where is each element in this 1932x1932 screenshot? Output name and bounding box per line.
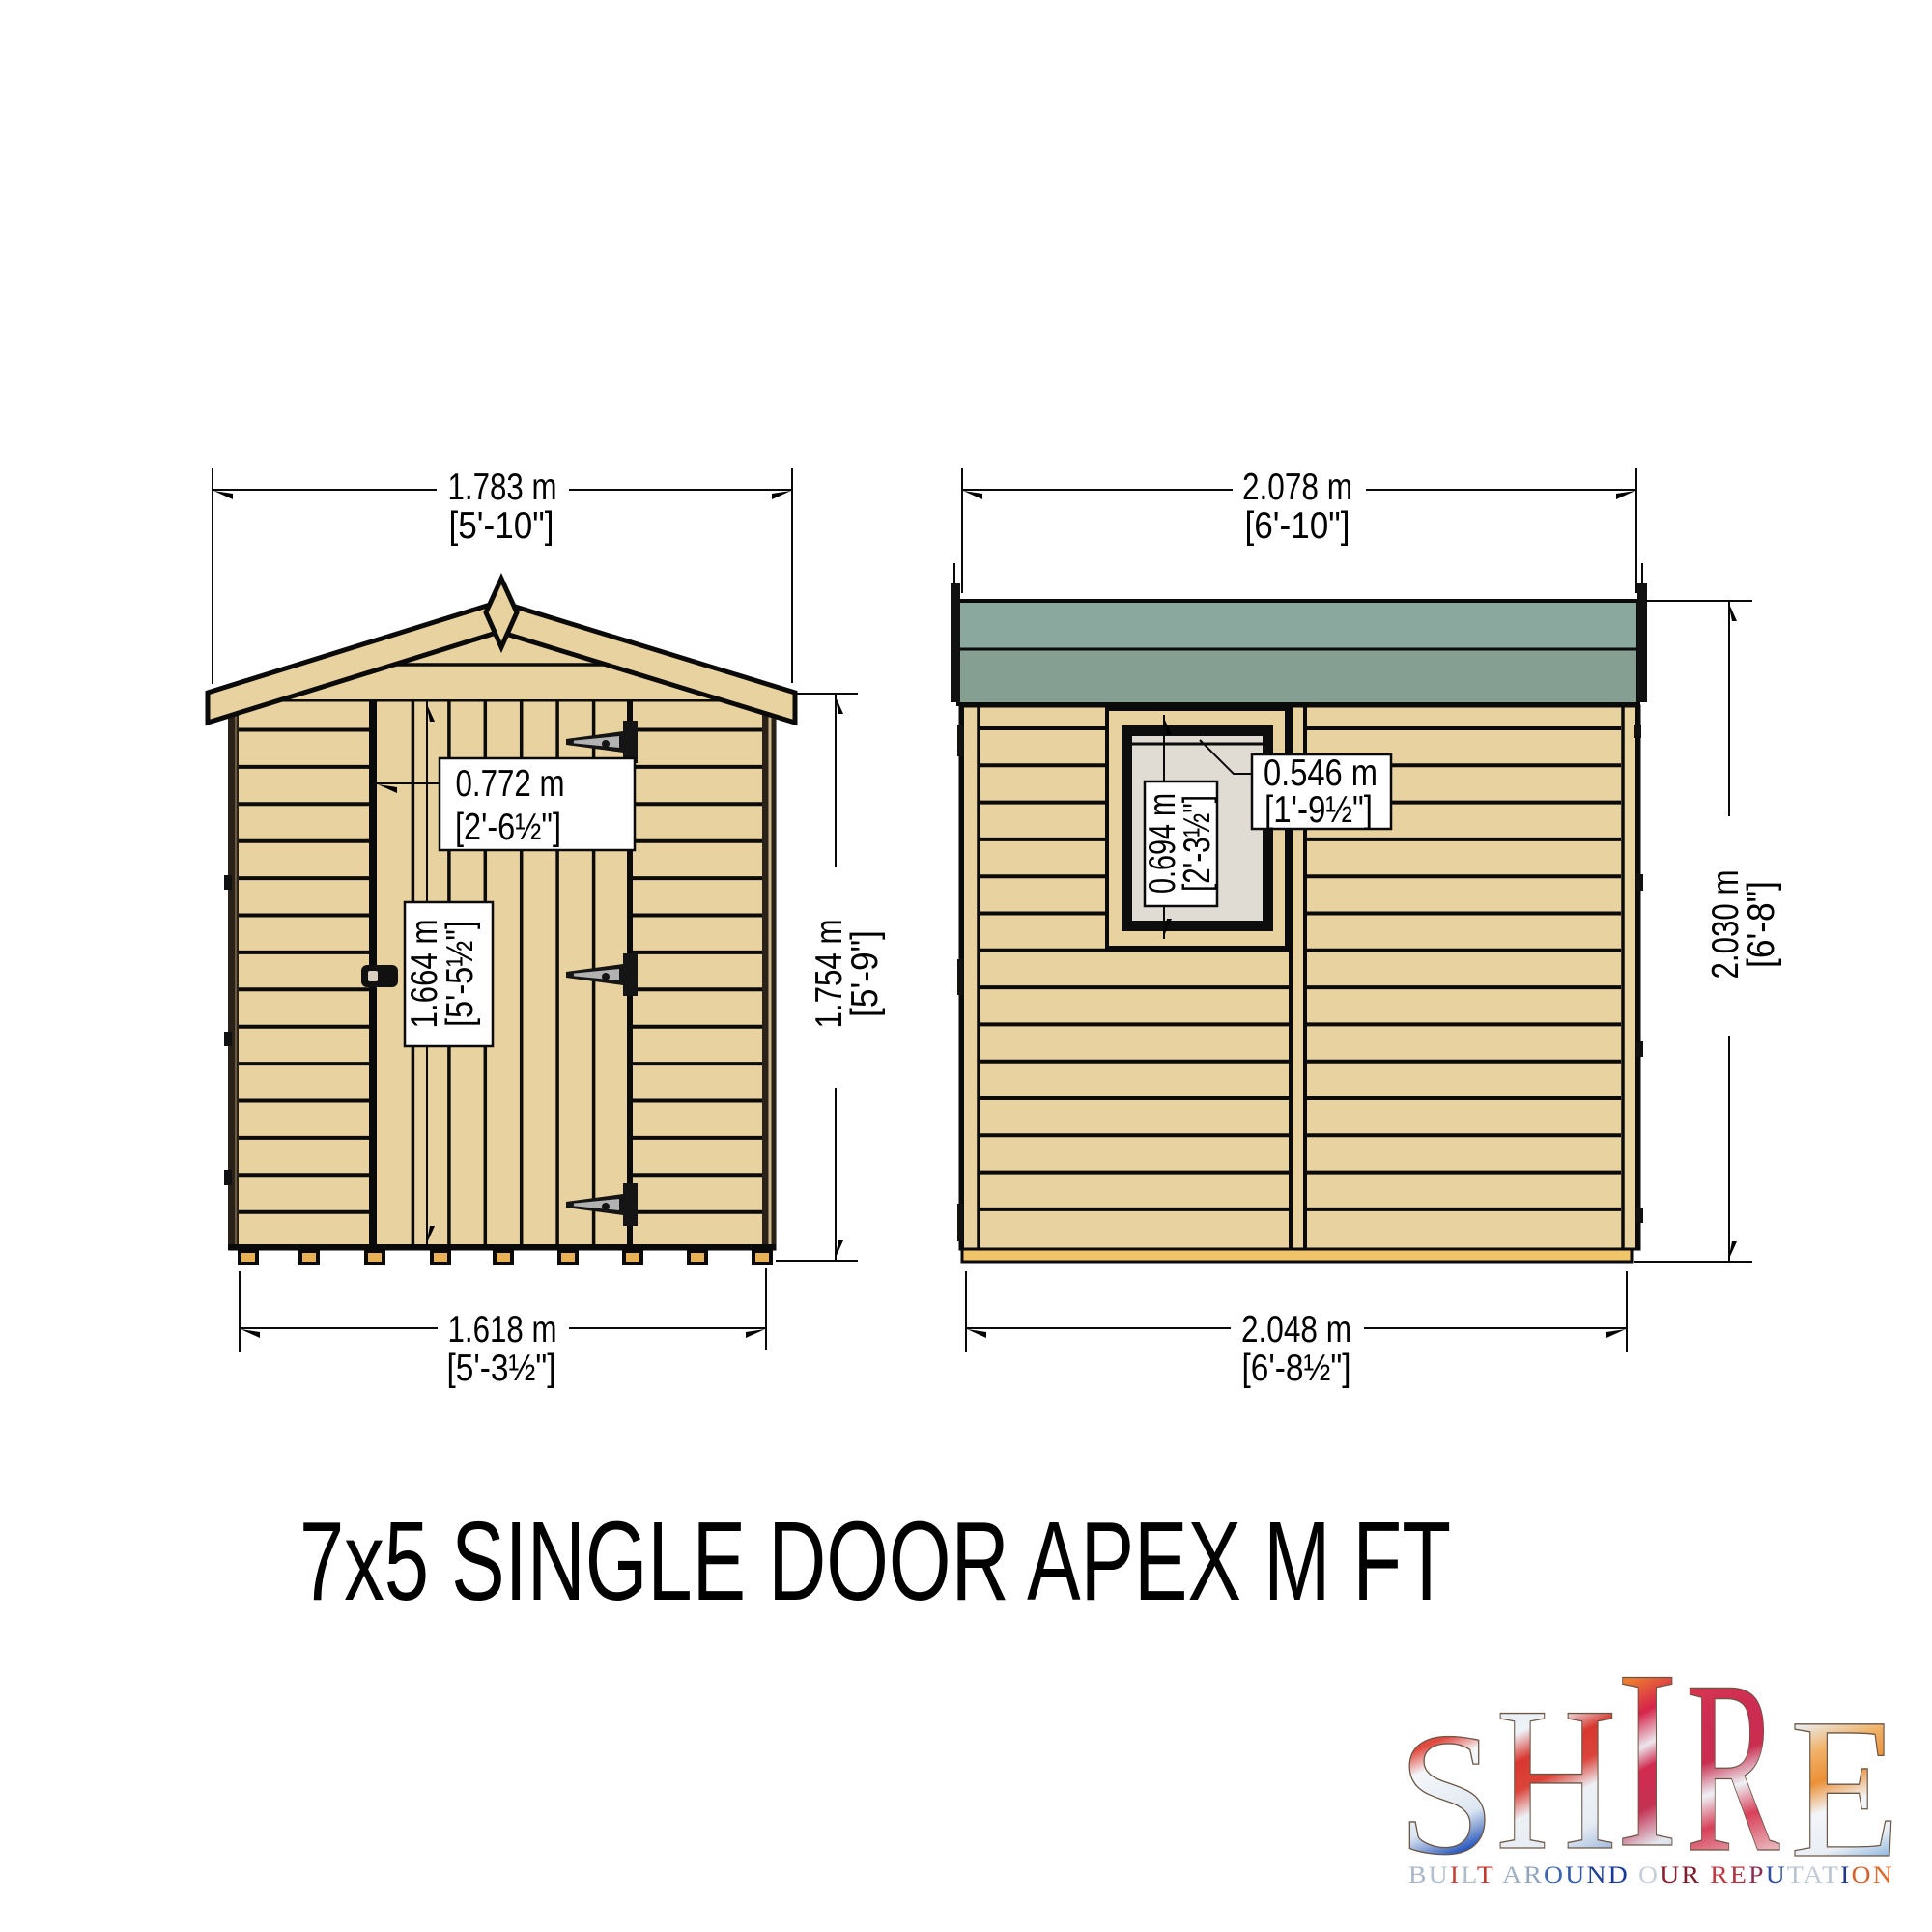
- svg-text:[6'-10"]: [6'-10"]: [1245, 505, 1350, 547]
- svg-text:[5'-5½"]: [5'-5½"]: [440, 921, 481, 1027]
- svg-text:2.078 m: 2.078 m: [1242, 467, 1352, 508]
- svg-text:1.783 m: 1.783 m: [448, 467, 557, 508]
- svg-text:7x5 SINGLE DOOR APEX M FT: 7x5 SINGLE DOOR APEX M FT: [299, 1498, 1451, 1624]
- svg-text:2.048 m: 2.048 m: [1241, 1309, 1351, 1350]
- svg-text:[2'-3½"]: [2'-3½"]: [1177, 795, 1218, 892]
- svg-text:[5'-3½"]: [5'-3½"]: [447, 1348, 556, 1389]
- svg-text:1.618 m: 1.618 m: [448, 1309, 557, 1350]
- svg-text:0.772 m: 0.772 m: [456, 763, 565, 805]
- svg-text:[6'-8"]: [6'-8"]: [1741, 881, 1782, 968]
- svg-text:0.546 m: 0.546 m: [1264, 753, 1378, 794]
- svg-text:[1'-9½"]: [1'-9½"]: [1264, 789, 1373, 831]
- svg-text:[5'-9"]: [5'-9"]: [844, 930, 886, 1017]
- svg-text:H: H: [1495, 1666, 1617, 1893]
- svg-text:BUILT AROUND OUR REPUTATION: BUILT AROUND OUR REPUTATION: [1408, 1862, 1894, 1889]
- svg-text:I: I: [1616, 1618, 1679, 1901]
- svg-text:[5'-10"]: [5'-10"]: [449, 505, 554, 547]
- svg-text:[2'-6½"]: [2'-6½"]: [455, 807, 561, 848]
- svg-text:[6'-8½"]: [6'-8½"]: [1242, 1348, 1351, 1389]
